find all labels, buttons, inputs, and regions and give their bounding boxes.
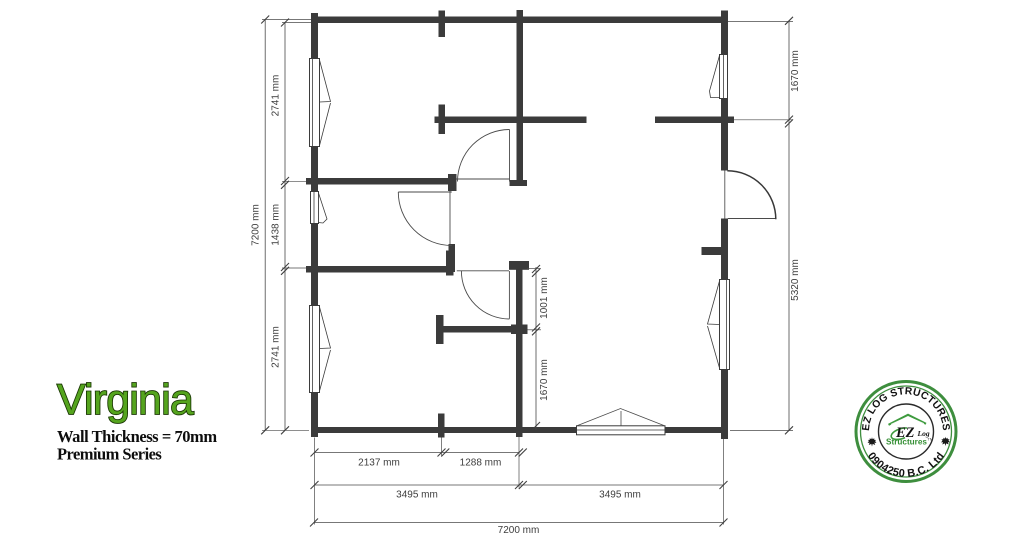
svg-text:Premium Series: Premium Series [57, 445, 162, 464]
svg-text:1670 mm: 1670 mm [539, 359, 550, 401]
svg-text:3495 mm: 3495 mm [396, 489, 438, 500]
svg-text:1288 mm: 1288 mm [460, 457, 502, 468]
svg-text:7200 mm: 7200 mm [250, 204, 261, 246]
svg-text:1001 mm: 1001 mm [539, 277, 550, 319]
svg-text:5320 mm: 5320 mm [790, 259, 801, 301]
svg-text:2741 mm: 2741 mm [271, 75, 282, 117]
svg-text:1670 mm: 1670 mm [790, 50, 801, 92]
svg-text:2741 mm: 2741 mm [271, 326, 282, 368]
svg-text:7200 mm: 7200 mm [498, 525, 540, 536]
svg-text:2137 mm: 2137 mm [358, 457, 400, 468]
svg-text:TM: TM [928, 438, 933, 442]
svg-text:3495 mm: 3495 mm [599, 489, 641, 500]
svg-text:Structures: Structures [886, 437, 927, 446]
svg-text:Wall Thickness = 70mm: Wall Thickness = 70mm [57, 427, 217, 446]
svg-text:1438 mm: 1438 mm [271, 204, 282, 246]
svg-text:Virginia: Virginia [57, 377, 194, 424]
